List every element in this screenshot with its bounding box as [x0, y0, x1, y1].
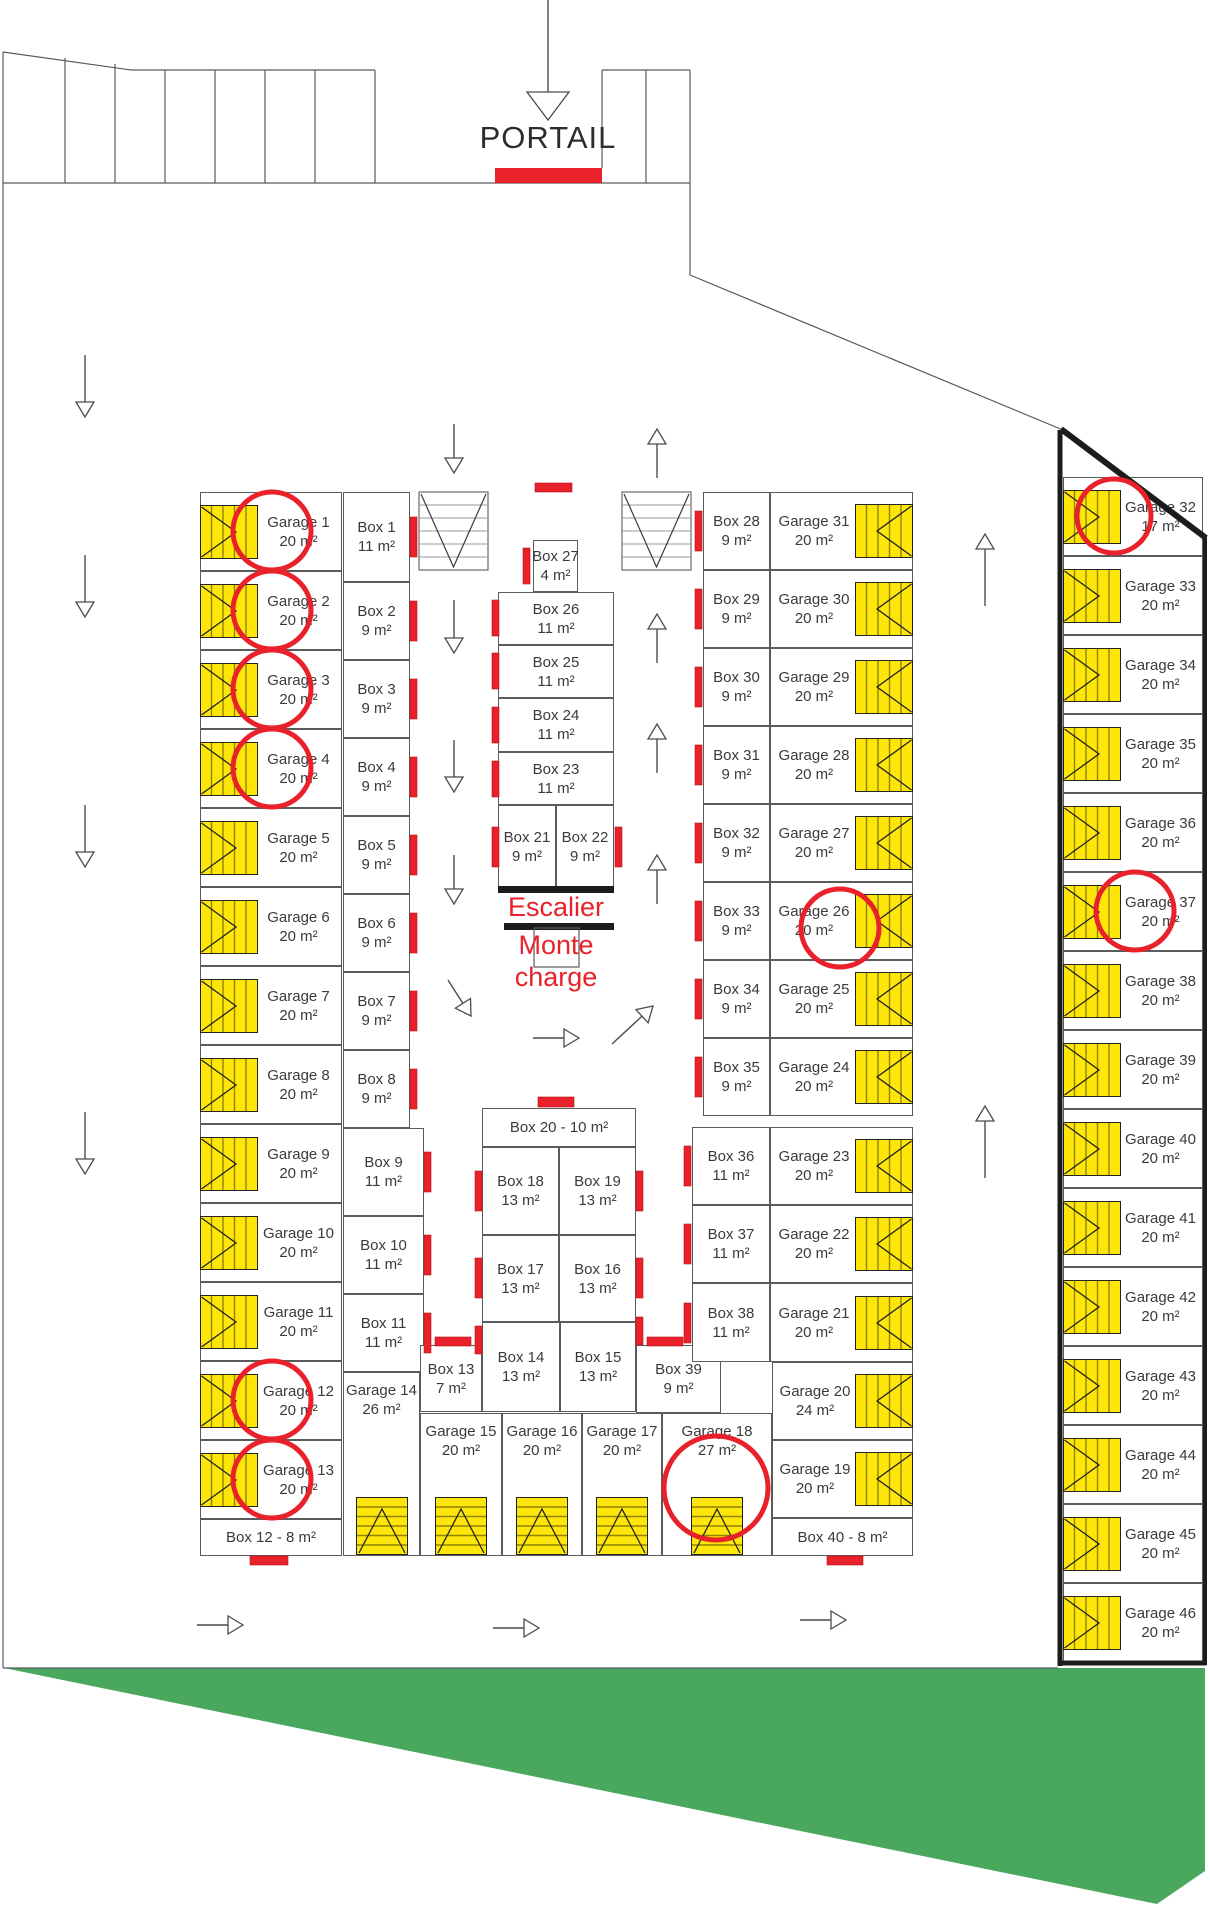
unit-area: 9 m²	[362, 1011, 392, 1030]
unit-box-20[interactable]: Box 20 - 10 m²	[482, 1108, 636, 1147]
unit-garage-41[interactable]: Garage 4120 m²	[1063, 1188, 1203, 1267]
unit-garage-38[interactable]: Garage 3820 m²	[1063, 951, 1203, 1030]
unit-label: Garage 1426 m²	[344, 1381, 419, 1419]
unit-area: 20 m²	[523, 1441, 561, 1460]
unit-box-15[interactable]: Box 1513 m²	[560, 1322, 636, 1412]
unit-garage-10[interactable]: Garage 1020 m²	[200, 1203, 342, 1282]
unit-area: 20 m²	[279, 611, 317, 630]
unit-garage-44[interactable]: Garage 4420 m²	[1063, 1425, 1203, 1504]
unit-label: Garage 2220 m²	[772, 1206, 856, 1282]
unit-garage-8[interactable]: Garage 820 m²	[200, 1045, 342, 1124]
unit-garage-2[interactable]: Garage 220 m²	[200, 571, 342, 650]
unit-box-27[interactable]: Box 274 m²	[533, 540, 578, 592]
unit-label: Box 89 m²	[344, 1051, 409, 1127]
unit-area: 20 m²	[1141, 1307, 1179, 1326]
unit-name: Garage 4	[267, 750, 330, 769]
unit-name: Garage 2	[267, 592, 330, 611]
unit-name: Garage 21	[779, 1304, 850, 1323]
door-marker	[695, 823, 702, 863]
door-marker	[615, 827, 622, 867]
unit-label: Garage 1920 m²	[774, 1441, 856, 1517]
unit-name: Garage 16	[507, 1422, 578, 1441]
unit-label: Garage 4020 m²	[1120, 1110, 1201, 1187]
unit-box-32[interactable]: Box 329 m²	[703, 804, 770, 882]
flow-arrow	[76, 355, 94, 417]
unit-garage-11[interactable]: Garage 1120 m²	[200, 1282, 342, 1361]
unit-box-40[interactable]: Box 40 - 8 m²	[772, 1518, 913, 1556]
unit-label: Garage 220 m²	[257, 572, 340, 649]
door-marker	[695, 745, 702, 785]
garage-door-icon	[1063, 727, 1121, 781]
unit-box-5[interactable]: Box 59 m²	[343, 816, 410, 894]
unit-name: Garage 15	[426, 1422, 497, 1441]
site-boundary-line	[690, 275, 1063, 430]
unit-name: Garage 28	[779, 746, 850, 765]
door-marker	[684, 1303, 691, 1343]
unit-area: 9 m²	[722, 609, 752, 628]
unit-area: 13 m²	[579, 1367, 617, 1386]
door-marker	[538, 1097, 574, 1107]
unit-garage-16[interactable]: Garage 1620 m²	[502, 1413, 582, 1556]
unit-garage-14[interactable]: Garage 1426 m²	[343, 1372, 420, 1556]
unit-garage-22[interactable]: Garage 2220 m²	[770, 1205, 913, 1283]
unit-name: Garage 32	[1125, 498, 1196, 517]
unit-label: Garage 3820 m²	[1120, 952, 1201, 1029]
unit-label: Box 49 m²	[344, 739, 409, 815]
unit-label: Box 339 m²	[704, 883, 769, 959]
flow-arrow	[976, 534, 994, 606]
garage-door-icon	[200, 900, 258, 954]
unit-name: Box 40 - 8 m²	[797, 1528, 887, 1547]
unit-area: 20 m²	[795, 1323, 833, 1342]
unit-name: Box 22	[562, 828, 609, 847]
unit-label: Garage 3020 m²	[772, 571, 856, 647]
unit-area: 20 m²	[795, 1166, 833, 1185]
unit-name: Garage 10	[263, 1224, 334, 1243]
unit-label: Box 40 - 8 m²	[773, 1519, 912, 1555]
unit-name: Garage 27	[779, 824, 850, 843]
garage-door-icon	[1063, 569, 1121, 623]
unit-label: Box 359 m²	[704, 1039, 769, 1115]
unit-garage-3[interactable]: Garage 320 m²	[200, 650, 342, 729]
unit-name: Box 6	[357, 914, 395, 933]
unit-area: 9 m²	[722, 531, 752, 550]
unit-name: Box 2	[357, 602, 395, 621]
unit-box-9[interactable]: Box 911 m²	[343, 1128, 424, 1216]
unit-garage-7[interactable]: Garage 720 m²	[200, 966, 342, 1045]
unit-garage-33[interactable]: Garage 3320 m²	[1063, 556, 1203, 635]
unit-area: 20 m²	[1141, 1623, 1179, 1642]
unit-label: Box 79 m²	[344, 973, 409, 1049]
unit-name: Box 1	[357, 518, 395, 537]
unit-garage-27[interactable]: Garage 2720 m²	[770, 804, 913, 882]
unit-label: Garage 1827 m²	[663, 1422, 771, 1460]
door-marker	[410, 835, 417, 875]
unit-area: 11 m²	[712, 1323, 749, 1342]
unit-label: Garage 3720 m²	[1120, 873, 1201, 950]
unit-name: Garage 23	[779, 1147, 850, 1166]
unit-label: Garage 2920 m²	[772, 649, 856, 725]
unit-area: 9 m²	[664, 1379, 694, 1398]
unit-label: Garage 4520 m²	[1120, 1505, 1201, 1582]
unit-label: Garage 3120 m²	[772, 493, 856, 569]
garage-door-icon	[855, 816, 913, 870]
garage-door-icon	[855, 738, 913, 792]
unit-label: Garage 720 m²	[257, 967, 340, 1044]
unit-garage-37[interactable]: Garage 3720 m²	[1063, 872, 1203, 951]
door-marker	[636, 1317, 643, 1345]
unit-garage-13[interactable]: Garage 1320 m²	[200, 1440, 342, 1519]
unit-garage-25[interactable]: Garage 2520 m²	[770, 960, 913, 1038]
unit-label: Garage 3420 m²	[1120, 636, 1201, 713]
unit-name: Garage 8	[267, 1066, 330, 1085]
flow-arrow	[448, 980, 471, 1016]
garage-door-icon	[855, 1139, 913, 1193]
unit-garage-30[interactable]: Garage 3020 m²	[770, 570, 913, 648]
unit-area: 20 m²	[279, 1480, 317, 1499]
unit-box-12[interactable]: Box 12 - 8 m²	[200, 1519, 342, 1556]
door-marker	[523, 548, 530, 584]
unit-label: Box 289 m²	[704, 493, 769, 569]
unit-label: Garage 420 m²	[257, 730, 340, 807]
unit-box-18[interactable]: Box 1813 m²	[482, 1147, 559, 1235]
unit-name: Box 3	[357, 680, 395, 699]
unit-garage-39[interactable]: Garage 3920 m²	[1063, 1030, 1203, 1109]
unit-label: Box 3611 m²	[693, 1128, 769, 1204]
unit-garage-24[interactable]: Garage 2420 m²	[770, 1038, 913, 1116]
unit-label: Garage 3520 m²	[1120, 715, 1201, 792]
unit-box-23[interactable]: Box 2311 m²	[498, 752, 614, 805]
unit-label: Garage 920 m²	[257, 1125, 340, 1202]
unit-area: 9 m²	[362, 1089, 392, 1108]
unit-name: Box 18	[497, 1172, 544, 1191]
plan-overlay	[0, 0, 1210, 1920]
unit-label: Box 20 - 10 m²	[483, 1109, 635, 1146]
unit-area: 11 m²	[365, 1333, 402, 1352]
unit-area: 11 m²	[537, 725, 574, 744]
unit-box-21[interactable]: Box 219 m²	[498, 805, 556, 888]
unit-area: 20 m²	[795, 765, 833, 784]
unit-label: Box 12 - 8 m²	[201, 1520, 341, 1555]
unit-box-26[interactable]: Box 2611 m²	[498, 592, 614, 645]
unit-area: 20 m²	[795, 531, 833, 550]
garage-door-icon	[200, 1216, 258, 1270]
unit-name: Box 25	[533, 653, 580, 672]
unit-label: Garage 1320 m²	[257, 1441, 340, 1518]
unit-name: Garage 6	[267, 908, 330, 927]
unit-name: Garage 3	[267, 671, 330, 690]
garage-door-icon	[855, 972, 913, 1026]
flow-arrow	[76, 805, 94, 867]
unit-area: 20 m²	[442, 1441, 480, 1460]
door-marker	[535, 483, 572, 492]
unit-name: Garage 13	[263, 1461, 334, 1480]
unit-name: Garage 19	[780, 1460, 851, 1479]
unit-garage-18[interactable]: Garage 1827 m²	[662, 1413, 772, 1556]
unit-area: 20 m²	[1141, 1149, 1179, 1168]
door-marker	[410, 991, 417, 1031]
unit-box-33[interactable]: Box 339 m²	[703, 882, 770, 960]
unit-name: Box 10	[360, 1236, 407, 1255]
unit-garage-20[interactable]: Garage 2024 m²	[772, 1362, 913, 1440]
door-marker	[636, 1171, 643, 1211]
unit-box-38[interactable]: Box 3811 m²	[692, 1283, 770, 1362]
unit-label: Garage 820 m²	[257, 1046, 340, 1123]
unit-box-31[interactable]: Box 319 m²	[703, 726, 770, 804]
unit-box-6[interactable]: Box 69 m²	[343, 894, 410, 972]
unit-label: Garage 620 m²	[257, 888, 340, 965]
unit-name: Box 8	[357, 1070, 395, 1089]
unit-area: 20 m²	[795, 609, 833, 628]
garage-door-icon	[200, 584, 258, 638]
unit-name: Box 23	[533, 760, 580, 779]
unit-name: Box 17	[497, 1260, 544, 1279]
unit-name: Garage 44	[1125, 1446, 1196, 1465]
door-marker	[424, 1152, 431, 1192]
door-marker	[410, 601, 417, 641]
unit-garage-34[interactable]: Garage 3420 m²	[1063, 635, 1203, 714]
unit-garage-12[interactable]: Garage 1220 m²	[200, 1361, 342, 1440]
unit-box-37[interactable]: Box 3711 m²	[692, 1205, 770, 1283]
unit-area: 20 m²	[603, 1441, 641, 1460]
unit-label: Box 137 m²	[421, 1346, 481, 1411]
garage-door-icon	[855, 1374, 913, 1428]
garage-door-icon	[1063, 964, 1121, 1018]
unit-box-2[interactable]: Box 29 m²	[343, 582, 410, 660]
unit-box-35[interactable]: Box 359 m²	[703, 1038, 770, 1116]
garage-door-icon	[200, 1058, 258, 1112]
unit-name: Box 16	[574, 1260, 621, 1279]
unit-label: Garage 520 m²	[257, 809, 340, 886]
unit-name: Garage 33	[1125, 577, 1196, 596]
garage-door-icon	[855, 1452, 913, 1506]
unit-area: 20 m²	[1141, 1465, 1179, 1484]
unit-label: Garage 2024 m²	[774, 1363, 856, 1439]
unit-garage-42[interactable]: Garage 4220 m²	[1063, 1267, 1203, 1346]
unit-name: Box 30	[713, 668, 760, 687]
door-marker	[695, 1057, 702, 1097]
unit-name: Box 24	[533, 706, 580, 725]
unit-area: 9 m²	[512, 847, 542, 866]
unit-area: 9 m²	[722, 843, 752, 862]
unit-label: Garage 1020 m²	[257, 1204, 340, 1281]
door-marker	[695, 589, 702, 629]
unit-label: Box 2611 m²	[499, 593, 613, 644]
unit-area: 20 m²	[279, 1085, 317, 1104]
unit-name: Garage 36	[1125, 814, 1196, 833]
door-marker	[475, 1171, 482, 1211]
unit-garage-19[interactable]: Garage 1920 m²	[772, 1440, 913, 1518]
unit-box-11[interactable]: Box 1111 m²	[343, 1294, 424, 1372]
unit-label: Box 1913 m²	[560, 1148, 635, 1234]
unit-name: Garage 14	[346, 1381, 417, 1400]
garage-door-icon	[516, 1497, 568, 1555]
unit-box-34[interactable]: Box 349 m²	[703, 960, 770, 1038]
flow-arrow	[612, 1006, 653, 1044]
unit-box-8[interactable]: Box 89 m²	[343, 1050, 410, 1128]
unit-name: Box 19	[574, 1172, 621, 1191]
unit-name: Garage 38	[1125, 972, 1196, 991]
door-marker	[684, 1146, 691, 1186]
unit-box-10[interactable]: Box 1011 m²	[343, 1216, 424, 1294]
unit-name: Box 31	[713, 746, 760, 765]
unit-area: 20 m²	[795, 687, 833, 706]
unit-area: 20 m²	[795, 1077, 833, 1096]
unit-area: 27 m²	[698, 1441, 736, 1460]
green-area	[4, 1668, 1205, 1904]
unit-name: Box 12 - 8 m²	[226, 1528, 316, 1547]
garage-door-icon	[1063, 885, 1121, 939]
unit-garage-26[interactable]: Garage 2620 m²	[770, 882, 913, 960]
unit-label: Garage 4420 m²	[1120, 1426, 1201, 1503]
unit-box-17[interactable]: Box 1713 m²	[482, 1235, 559, 1322]
garage-door-icon	[1063, 1438, 1121, 1492]
unit-label: Box 349 m²	[704, 961, 769, 1037]
unit-garage-5[interactable]: Garage 520 m²	[200, 808, 342, 887]
unit-name: Box 36	[708, 1147, 755, 1166]
unit-garage-4[interactable]: Garage 420 m²	[200, 729, 342, 808]
unit-area: 11 m²	[365, 1172, 402, 1191]
unit-garage-21[interactable]: Garage 2120 m²	[770, 1283, 913, 1362]
unit-label: Box 329 m²	[704, 805, 769, 881]
unit-name: Box 4	[357, 758, 395, 777]
unit-label: Box 1513 m²	[561, 1323, 635, 1411]
garage-door-icon	[1063, 1043, 1121, 1097]
garage-door-icon	[855, 504, 913, 558]
unit-name: Garage 35	[1125, 735, 1196, 754]
unit-label: Box 1713 m²	[483, 1236, 558, 1321]
unit-box-28[interactable]: Box 289 m²	[703, 492, 770, 570]
unit-label: Box 219 m²	[499, 806, 555, 887]
unit-box-1[interactable]: Box 111 m²	[343, 492, 410, 582]
unit-name: Garage 37	[1125, 893, 1196, 912]
garage-door-icon	[435, 1497, 487, 1555]
unit-label: Garage 2620 m²	[772, 883, 856, 959]
flow-arrow	[76, 555, 94, 617]
unit-box-16[interactable]: Box 1613 m²	[559, 1235, 636, 1322]
unit-area: 20 m²	[279, 1322, 317, 1341]
unit-area: 20 m²	[795, 999, 833, 1018]
unit-name: Box 11	[361, 1314, 407, 1333]
unit-name: Box 38	[708, 1304, 755, 1323]
garage-door-icon	[855, 894, 913, 948]
unit-box-7[interactable]: Box 79 m²	[343, 972, 410, 1050]
unit-label: Box 299 m²	[704, 571, 769, 647]
unit-label: Garage 1120 m²	[257, 1283, 340, 1360]
unit-label: Garage 3620 m²	[1120, 794, 1201, 871]
unit-area: 9 m²	[362, 699, 392, 718]
unit-garage-15[interactable]: Garage 1520 m²	[420, 1413, 502, 1556]
unit-garage-36[interactable]: Garage 3620 m²	[1063, 793, 1203, 872]
unit-label: Garage 4320 m²	[1120, 1347, 1201, 1424]
unit-garage-1[interactable]: Garage 120 m²	[200, 492, 342, 571]
unit-name: Garage 42	[1125, 1288, 1196, 1307]
unit-garage-43[interactable]: Garage 4320 m²	[1063, 1346, 1203, 1425]
unit-area: 13 m²	[502, 1367, 540, 1386]
unit-label: Box 69 m²	[344, 895, 409, 971]
garage-door-icon	[1063, 648, 1121, 702]
door-marker	[695, 511, 702, 551]
unit-garage-31[interactable]: Garage 3120 m²	[770, 492, 913, 570]
garage-door-icon	[200, 821, 258, 875]
unit-area: 11 m²	[537, 779, 574, 798]
unit-area: 11 m²	[712, 1244, 749, 1263]
unit-box-4[interactable]: Box 49 m²	[343, 738, 410, 816]
unit-name: Garage 7	[267, 987, 330, 1006]
unit-box-36[interactable]: Box 3611 m²	[692, 1127, 770, 1205]
unit-area: 9 m²	[722, 765, 752, 784]
escalier-label: Escalier	[508, 892, 604, 923]
unit-area: 20 m²	[1141, 833, 1179, 852]
unit-area: 11 m²	[537, 619, 574, 638]
garage-door-icon	[1063, 1280, 1121, 1334]
unit-garage-23[interactable]: Garage 2320 m²	[770, 1127, 913, 1205]
unit-area: 20 m²	[279, 769, 317, 788]
monte-charge-label-line1: Monte	[518, 930, 593, 961]
unit-name: Box 21	[504, 828, 551, 847]
escalier-bar	[504, 923, 614, 930]
unit-label: Box 3711 m²	[693, 1206, 769, 1282]
unit-box-24[interactable]: Box 2411 m²	[498, 698, 614, 752]
unit-box-3[interactable]: Box 39 m²	[343, 660, 410, 738]
door-marker	[410, 517, 417, 557]
unit-box-19[interactable]: Box 1913 m²	[559, 1147, 636, 1235]
unit-name: Garage 39	[1125, 1051, 1196, 1070]
garage-door-icon	[200, 979, 258, 1033]
unit-area: 13 m²	[578, 1279, 616, 1298]
unit-garage-29[interactable]: Garage 2920 m²	[770, 648, 913, 726]
unit-box-22[interactable]: Box 229 m²	[556, 805, 614, 888]
unit-garage-46[interactable]: Garage 4620 m²	[1063, 1583, 1203, 1662]
unit-label: Garage 4220 m²	[1120, 1268, 1201, 1345]
unit-name: Garage 45	[1125, 1525, 1196, 1544]
unit-garage-32[interactable]: Garage 3217 m²	[1063, 477, 1203, 556]
unit-garage-9[interactable]: Garage 920 m²	[200, 1124, 342, 1203]
site-boundary-line	[3, 52, 131, 70]
unit-area: 13 m²	[501, 1191, 539, 1210]
unit-garage-17[interactable]: Garage 1720 m²	[582, 1413, 662, 1556]
flow-arrow	[76, 1112, 94, 1174]
unit-garage-6[interactable]: Garage 620 m²	[200, 887, 342, 966]
monte-charge-label-line2: charge	[515, 962, 598, 993]
door-marker	[250, 1556, 288, 1565]
unit-garage-45[interactable]: Garage 4520 m²	[1063, 1504, 1203, 1583]
unit-box-13[interactable]: Box 137 m²	[420, 1345, 482, 1412]
unit-area: 9 m²	[722, 921, 752, 940]
unit-garage-35[interactable]: Garage 3520 m²	[1063, 714, 1203, 793]
door-marker	[695, 979, 702, 1019]
unit-box-14[interactable]: Box 1413 m²	[482, 1322, 560, 1412]
flow-arrow	[648, 614, 666, 663]
flow-arrow	[976, 1106, 994, 1178]
unit-box-30[interactable]: Box 309 m²	[703, 648, 770, 726]
unit-garage-40[interactable]: Garage 4020 m²	[1063, 1109, 1203, 1188]
unit-box-25[interactable]: Box 2511 m²	[498, 645, 614, 698]
garage-door-icon	[691, 1497, 743, 1555]
unit-label: Box 309 m²	[704, 649, 769, 725]
unit-area: 9 m²	[362, 621, 392, 640]
unit-box-29[interactable]: Box 299 m²	[703, 570, 770, 648]
garage-door-icon	[200, 505, 258, 559]
garage-door-icon	[855, 1217, 913, 1271]
unit-area: 20 m²	[1141, 754, 1179, 773]
unit-garage-28[interactable]: Garage 2820 m²	[770, 726, 913, 804]
unit-area: 9 m²	[362, 777, 392, 796]
unit-area: 20 m²	[1141, 596, 1179, 615]
unit-name: Garage 25	[779, 980, 850, 999]
unit-name: Box 33	[713, 902, 760, 921]
unit-name: Box 15	[575, 1348, 622, 1367]
